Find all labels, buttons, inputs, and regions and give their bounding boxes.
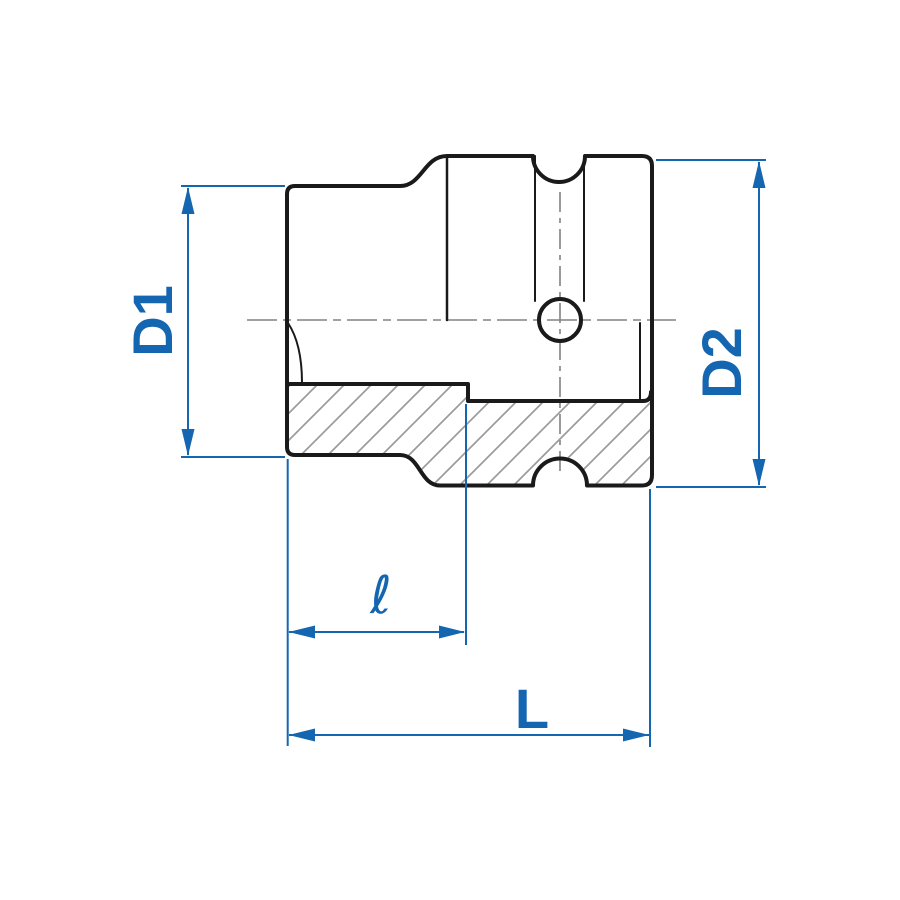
drawing-canvas: D1 D2 ℓ L (0, 0, 900, 900)
d2-dimension-label: D2 (690, 327, 753, 399)
depth-dimension-label: ℓ (369, 566, 391, 626)
length-dimension-label: L (515, 677, 549, 740)
d1-dimension-label: D1 (121, 285, 184, 357)
technical-drawing-socket-section: D1 D2 ℓ L (0, 0, 900, 900)
